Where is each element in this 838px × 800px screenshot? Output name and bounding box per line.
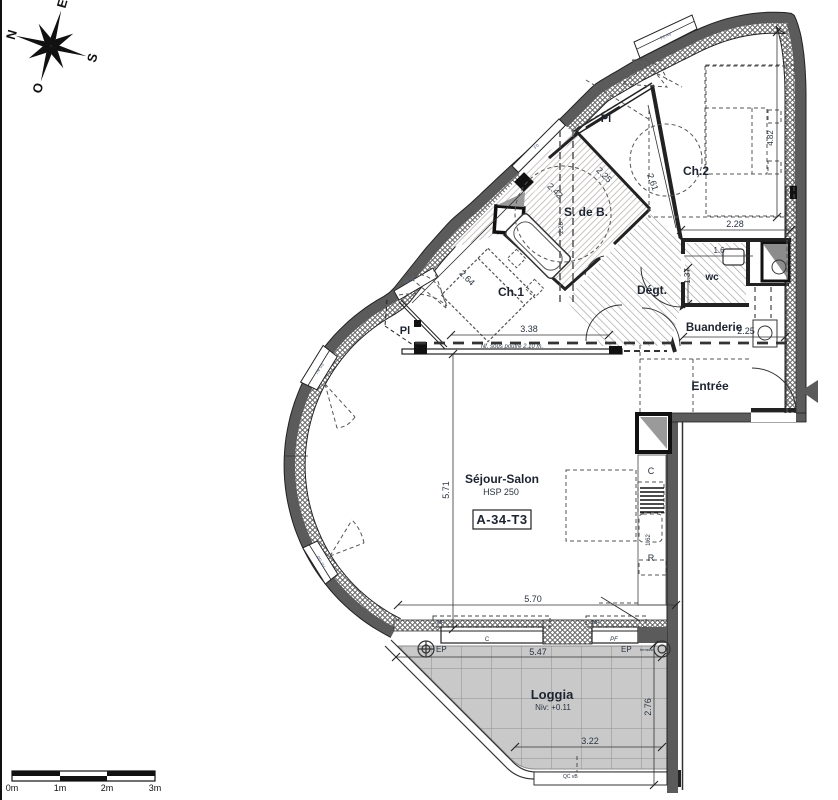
svg-text:Loggia: Loggia [531, 687, 574, 702]
svg-text:R: R [648, 553, 655, 563]
svg-text:1.62: 1.62 [646, 534, 652, 546]
svg-text:5.70: 5.70 [524, 594, 542, 604]
svg-text:C: C [485, 637, 490, 643]
svg-text:1.6: 1.6 [713, 246, 725, 255]
svg-text:S: S [84, 51, 101, 64]
svg-text:PF: PF [610, 637, 618, 643]
svg-text:terrasse: terrasse [640, 647, 655, 652]
svg-text:2.61: 2.61 [645, 172, 660, 192]
svg-text:1.37: 1.37 [683, 268, 692, 284]
svg-text:5.71: 5.71 [441, 481, 451, 499]
svg-text:5.47: 5.47 [529, 647, 547, 657]
svg-text:EP: EP [621, 645, 632, 654]
svg-text:Séjour-Salon: Séjour-Salon [465, 472, 539, 486]
svg-text:3.22: 3.22 [581, 736, 599, 746]
svg-text:N: N [3, 28, 20, 41]
svg-text:A-34-T3: A-34-T3 [476, 512, 527, 527]
svg-text:4.82: 4.82 [766, 130, 775, 146]
svg-text:wc: wc [704, 272, 719, 283]
svg-text:O: O [29, 81, 46, 95]
svg-text:2.28: 2.28 [726, 219, 744, 229]
svg-text:2.25: 2.25 [737, 326, 755, 336]
svg-text:Pl: Pl [601, 113, 611, 125]
svg-text:0m: 0m [6, 783, 19, 793]
svg-text:1m: 1m [54, 783, 67, 793]
svg-text:Dégt.: Dégt. [637, 283, 667, 297]
svg-text:2m: 2m [101, 783, 114, 793]
svg-text:Ch.2: Ch.2 [683, 164, 709, 178]
svg-text:C: C [648, 466, 655, 476]
svg-text:E: E [54, 0, 71, 10]
svg-text:QC vB: QC vB [563, 774, 578, 780]
svg-text:S. de B.: S. de B. [564, 205, 608, 219]
svg-text:HSP 250: HSP 250 [483, 487, 519, 497]
svg-text:Buanderie: Buanderie [686, 322, 742, 334]
svg-text:Niv: +0.11: Niv: +0.11 [535, 703, 571, 712]
svg-text:Nf. sous poutre 2.10 m.: Nf. sous poutre 2.10 m. [481, 344, 543, 350]
svg-text:3m: 3m [149, 783, 162, 793]
svg-text:2.76: 2.76 [643, 698, 653, 716]
svg-text:Pl: Pl [400, 325, 410, 337]
svg-text:Entrée: Entrée [691, 379, 729, 393]
svg-text:3.38: 3.38 [520, 324, 538, 334]
svg-text:MF: MF [437, 620, 444, 626]
svg-text:EP: EP [436, 645, 447, 654]
svg-text:2.64: 2.64 [457, 268, 476, 287]
svg-text:MF: MF [592, 620, 599, 626]
svg-text:2.26: 2.26 [559, 222, 565, 234]
svg-text:Ch.1: Ch.1 [498, 285, 524, 299]
